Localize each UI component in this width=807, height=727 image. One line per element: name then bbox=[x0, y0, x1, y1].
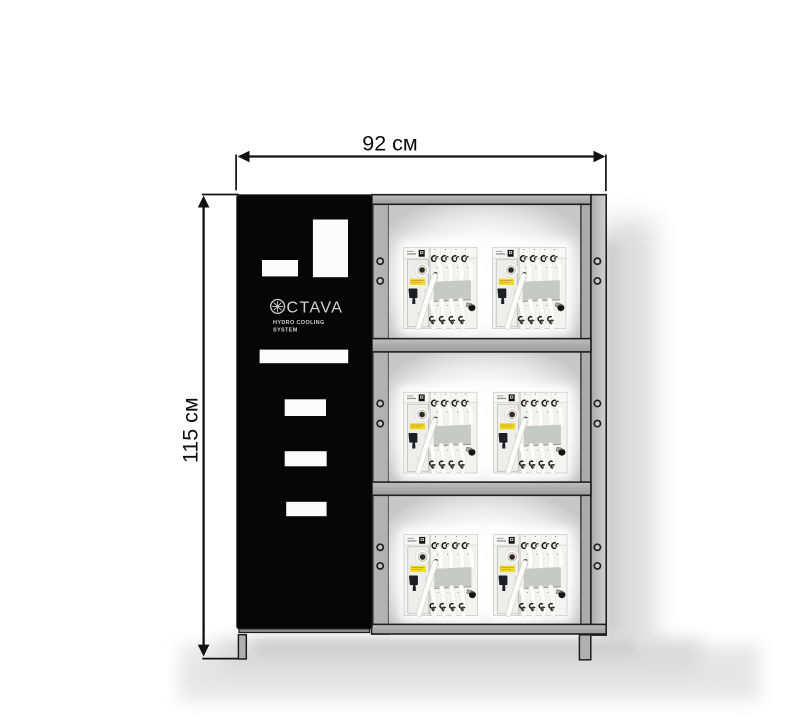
svg-text:CTAVA: CTAVA bbox=[287, 300, 344, 317]
svg-text:HYDRO COOLING: HYDRO COOLING bbox=[273, 320, 325, 326]
svg-text:115 см: 115 см bbox=[179, 397, 203, 463]
svg-text:SYSTEM: SYSTEM bbox=[273, 327, 298, 333]
svg-text:92 см: 92 см bbox=[362, 132, 417, 156]
